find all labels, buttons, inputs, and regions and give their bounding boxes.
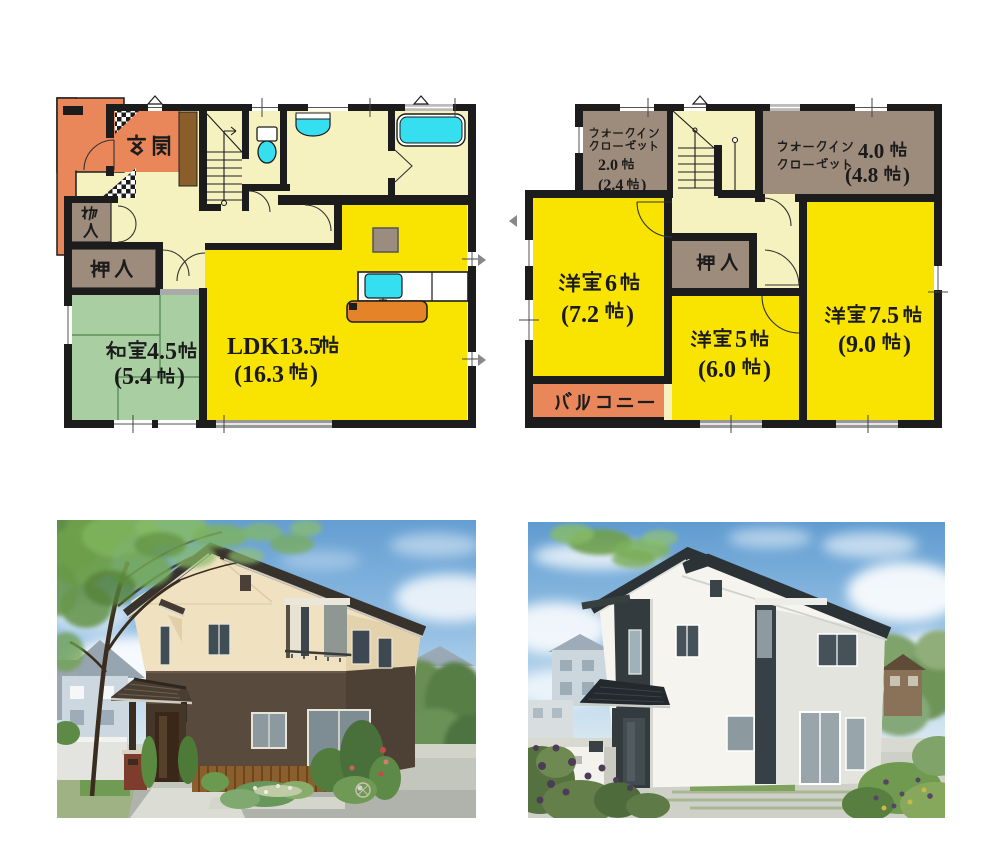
svg-text:2.0: 2.0 bbox=[598, 157, 618, 174]
svg-text:LDK13.5: LDK13.5 bbox=[227, 334, 321, 360]
svg-text:): ) bbox=[626, 302, 634, 328]
svg-text:(4.8: (4.8 bbox=[845, 163, 878, 187]
svg-text:): ) bbox=[310, 362, 318, 388]
svg-text:): ) bbox=[763, 357, 771, 383]
svg-text:(2.4: (2.4 bbox=[598, 177, 623, 194]
svg-text:4.0: 4.0 bbox=[858, 139, 884, 163]
svg-text:): ) bbox=[903, 332, 911, 358]
svg-text:4.5: 4.5 bbox=[147, 339, 177, 365]
svg-text:): ) bbox=[177, 364, 185, 390]
svg-text:5: 5 bbox=[735, 327, 747, 353]
svg-text:): ) bbox=[641, 177, 646, 194]
svg-text:6: 6 bbox=[605, 271, 617, 297]
svg-text:): ) bbox=[903, 163, 910, 187]
svg-text:(9.0: (9.0 bbox=[838, 332, 876, 358]
svg-text:(16.3: (16.3 bbox=[234, 362, 284, 388]
svg-text:(5.4: (5.4 bbox=[114, 364, 152, 390]
svg-text:7.5: 7.5 bbox=[869, 303, 899, 329]
svg-text:(7.2: (7.2 bbox=[561, 302, 599, 328]
svg-text:(6.0: (6.0 bbox=[698, 357, 736, 383]
